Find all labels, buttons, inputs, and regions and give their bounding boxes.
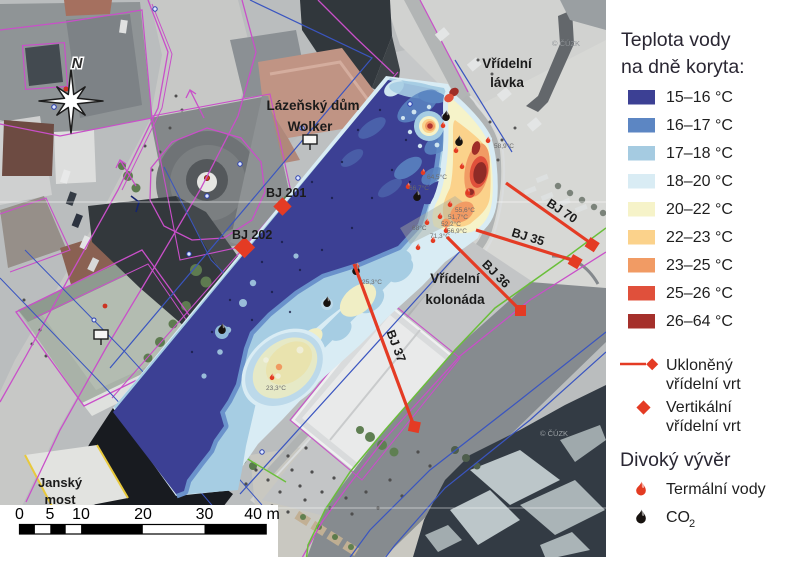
svg-text:Lázeňský dům: Lázeňský dům: [266, 98, 359, 113]
svg-text:lávka: lávka: [490, 75, 524, 90]
svg-text:N: N: [72, 55, 84, 72]
svg-text:CO: CO: [666, 509, 690, 526]
svg-text:Teplota vody: Teplota vody: [621, 29, 731, 51]
svg-text:20: 20: [134, 506, 152, 523]
svg-text:BJ 202: BJ 202: [232, 228, 272, 242]
svg-text:Ukloněný: Ukloněný: [666, 357, 733, 374]
svg-text:Vřídelní: Vřídelní: [430, 271, 481, 286]
svg-text:22–23 °C: 22–23 °C: [666, 229, 733, 246]
svg-text:40 m: 40 m: [244, 506, 280, 523]
svg-text:Janský: Janský: [38, 475, 83, 490]
svg-text:2: 2: [689, 518, 695, 530]
svg-text:© ČÚZK: © ČÚZK: [540, 429, 568, 438]
svg-text:25,3°C: 25,3°C: [362, 278, 382, 286]
svg-text:26–64 °C: 26–64 °C: [666, 313, 733, 330]
svg-text:© ČÚZK: © ČÚZK: [552, 39, 580, 48]
svg-text:51,7°C: 51,7°C: [448, 213, 468, 221]
svg-text:na dně koryta:: na dně koryta:: [621, 56, 745, 78]
svg-text:52,2°C: 52,2°C: [441, 220, 461, 228]
svg-text:17–18 °C: 17–18 °C: [666, 145, 733, 162]
svg-text:Vertikální: Vertikální: [666, 399, 732, 416]
svg-text:5: 5: [46, 506, 55, 523]
svg-text:Divoký vývěr: Divoký vývěr: [620, 449, 731, 471]
svg-text:0: 0: [15, 506, 24, 523]
svg-text:58,9°C: 58,9°C: [494, 142, 514, 150]
svg-text:vřídelní vrt: vřídelní vrt: [666, 376, 741, 393]
svg-text:64,5°C: 64,5°C: [427, 173, 447, 181]
svg-text:kolonáda: kolonáda: [425, 292, 485, 307]
svg-text:18–20 °C: 18–20 °C: [666, 173, 733, 190]
svg-text:16–17 °C: 16–17 °C: [666, 117, 733, 134]
svg-text:30: 30: [196, 506, 214, 523]
svg-text:66,7°C: 66,7°C: [409, 184, 429, 192]
svg-text:vřídelní vrt: vřídelní vrt: [666, 418, 741, 435]
svg-text:BJ 201: BJ 201: [266, 186, 306, 200]
svg-text:56,9°C: 56,9°C: [447, 227, 467, 235]
svg-text:25–26 °C: 25–26 °C: [666, 285, 733, 302]
svg-text:15–16 °C: 15–16 °C: [666, 89, 733, 106]
svg-text:Wolker: Wolker: [288, 119, 334, 134]
svg-text:20–22 °C: 20–22 °C: [666, 201, 733, 218]
svg-text:Vřídelní: Vřídelní: [482, 56, 533, 71]
svg-text:23,3°C: 23,3°C: [266, 384, 286, 392]
svg-text:most: most: [44, 492, 76, 507]
svg-text:10: 10: [72, 506, 90, 523]
svg-text:68°C: 68°C: [412, 224, 427, 232]
svg-text:23–25 °C: 23–25 °C: [666, 257, 733, 274]
svg-text:55,6°C: 55,6°C: [455, 206, 475, 214]
svg-text:Termální vody: Termální vody: [666, 481, 766, 498]
